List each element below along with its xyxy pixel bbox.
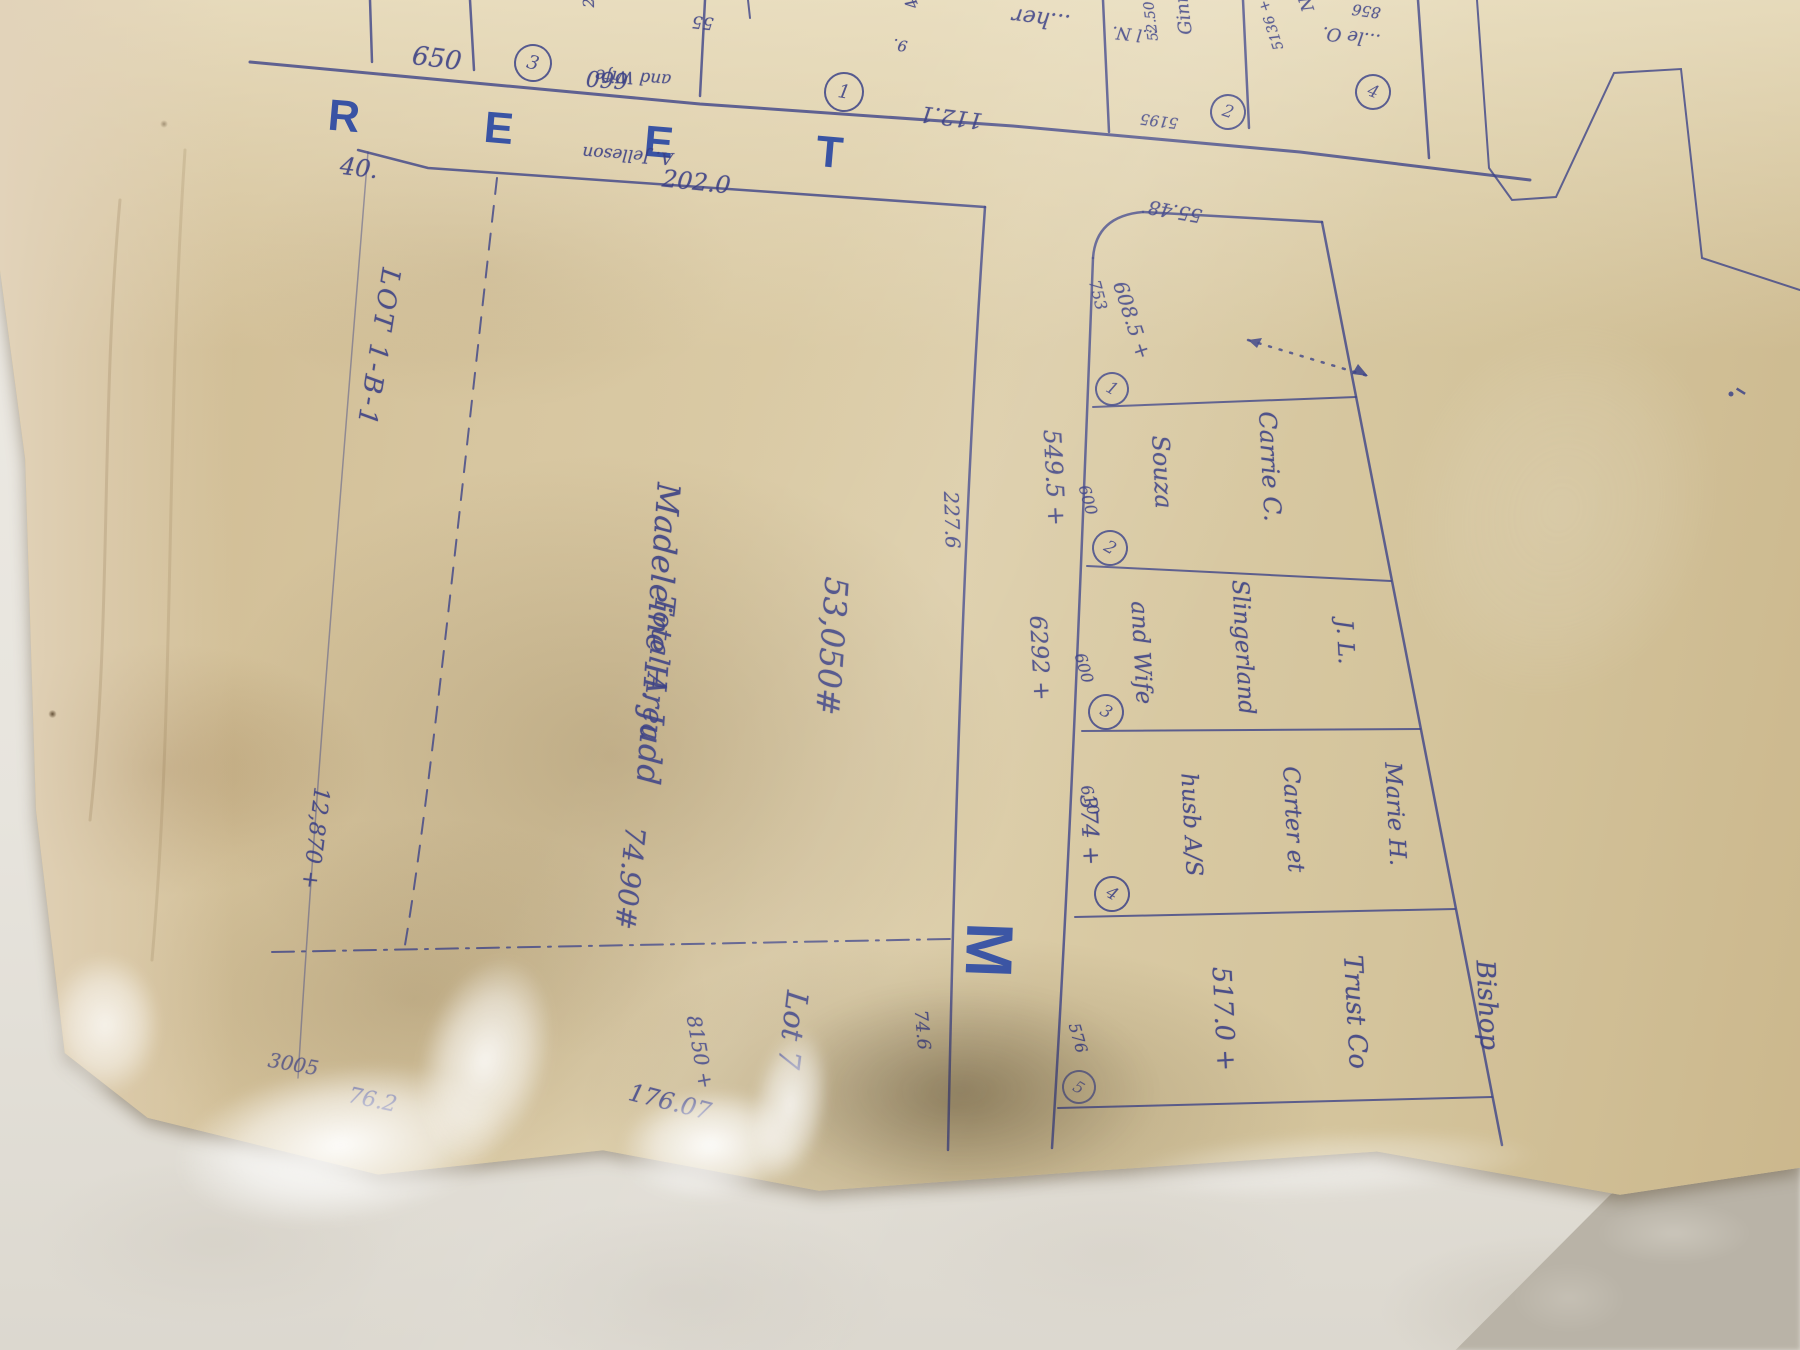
street-upper-line (250, 62, 1530, 180)
owner-line: and Wife (1121, 584, 1162, 721)
street-letter-e1: E (482, 103, 516, 155)
arrowheads (1248, 338, 1746, 397)
lot-number: 5 (1070, 1076, 1088, 1098)
owner-line: Trust Co (1330, 954, 1380, 1070)
dim-40: 40. (338, 152, 379, 184)
owner-area: 6292 + (1019, 590, 1060, 727)
cross-street-letter-m: M (951, 921, 1029, 979)
lot-number: 1 (1102, 378, 1121, 401)
num-856: 856 (1351, 0, 1382, 22)
dim-650: 650 (410, 41, 463, 77)
owner-line: Carrie C. (1249, 410, 1291, 522)
owner-line: Slingerland (1222, 579, 1263, 716)
dim-227-6: 227.6 (939, 491, 965, 549)
street-letter-r: R (326, 91, 362, 144)
lot-number: 1 (836, 80, 852, 104)
mark-9: 9. (892, 35, 909, 55)
lot-number: 4 (1364, 81, 1381, 103)
judd-strip-dashed-line (405, 178, 497, 945)
street-letter-t: T (814, 127, 845, 179)
judd-owner-block: 53,050# Madeleine H. Judd (503, 473, 987, 808)
rounded-corner (1093, 212, 1143, 258)
owner-line: Bishop (1462, 947, 1512, 1063)
blueprint-paper-wrap: R E E T M 650 3 A. Jelleson and Wife 210… (0, 0, 1800, 1350)
lot-number: 2 (1100, 537, 1119, 560)
owner-line: husb A/S (1171, 771, 1211, 879)
owner-area: 517.0 + (1198, 961, 1248, 1077)
blueprint-paper: R E E T M 650 3 A. Jelleson and Wife 210… (0, 0, 1800, 1350)
owner-line: Carter et (1273, 765, 1313, 873)
owner-line: J. L. (1324, 574, 1365, 711)
owner-area: 549.5 + (1033, 422, 1075, 534)
judd-area: 53,050# (792, 493, 871, 799)
judd-bottom-dashdot-line (272, 939, 950, 952)
top-right-parcel-outline (1477, 0, 1800, 290)
dim-660: 660 (585, 65, 629, 93)
paper-stain-spot (22, 778, 36, 790)
lot-number: 3 (1096, 701, 1115, 724)
owner-line: Marie H. (1375, 760, 1415, 868)
dim-74-6: 74.6 (910, 1009, 934, 1051)
slingerland-owner-block: J. L. Slingerland and Wife 6292 + (951, 570, 1433, 730)
owner-area: 374 + (1069, 776, 1109, 884)
dim-55: 55 (691, 11, 715, 33)
photo-of-plat-map: R E E T M 650 3 A. Jelleson and Wife 210… (0, 0, 1800, 1350)
lot-number: 3 (524, 51, 541, 75)
souza-owner-block: Carrie C. Souza 549.5 + (961, 407, 1362, 538)
lot-number: 4 (1102, 883, 1121, 906)
owner-line: A. Jelleson (581, 139, 673, 171)
lot-number: 2 (1220, 101, 1236, 123)
jelleson-area: 2100 + (578, 0, 598, 8)
owner-line: Souza (1141, 416, 1183, 528)
